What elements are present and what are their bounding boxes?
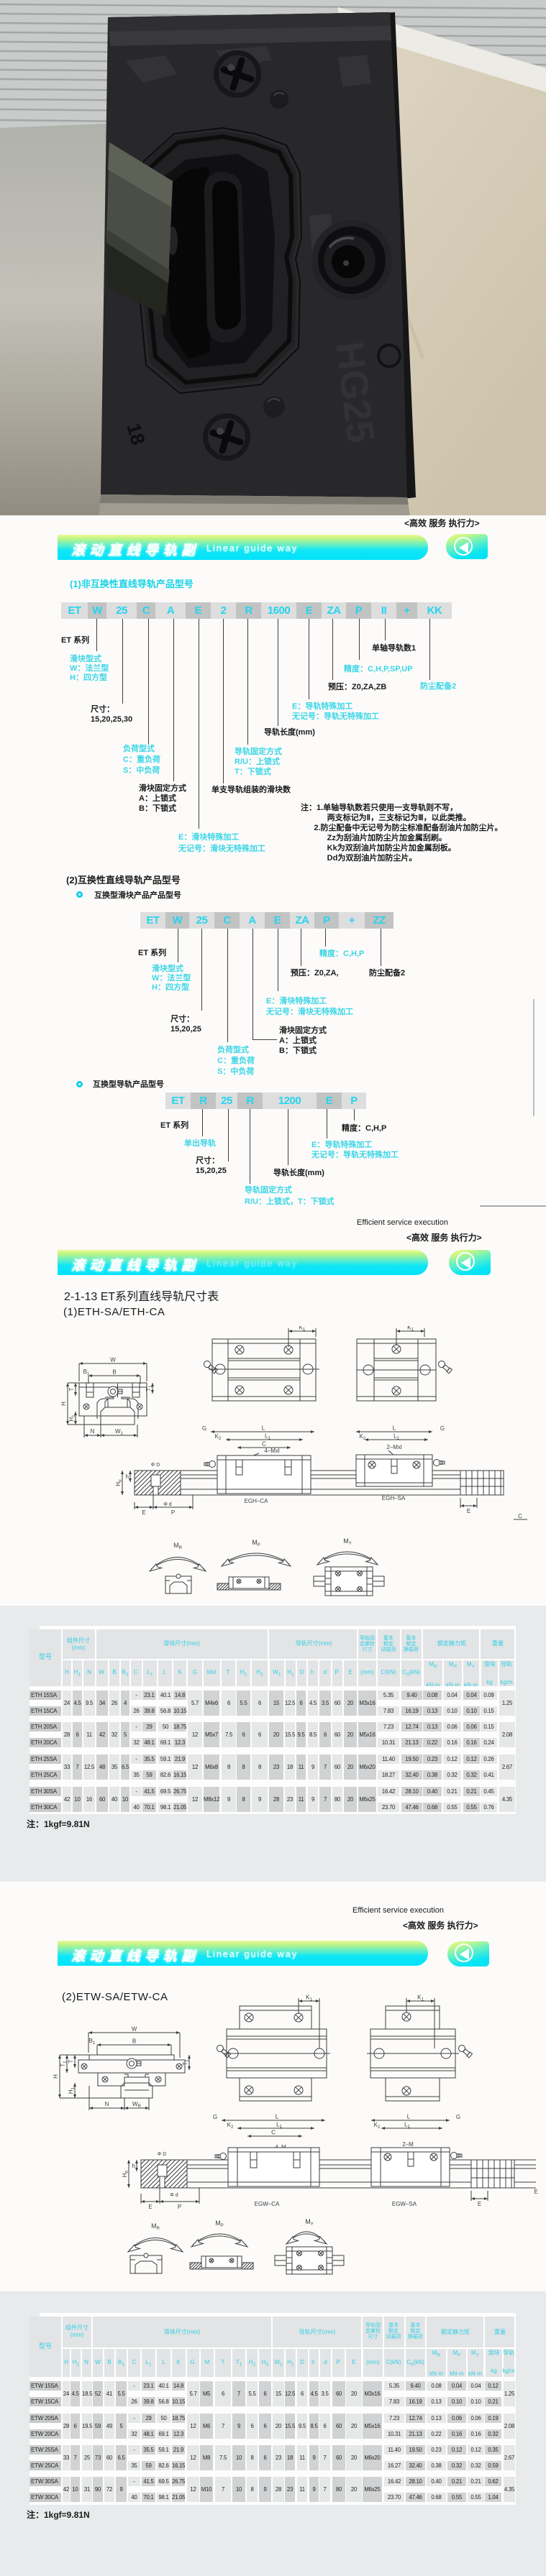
svg-text:N: N xyxy=(91,1428,95,1435)
svg-text:h: h xyxy=(132,2163,135,2169)
svg-text:P: P xyxy=(178,2204,181,2210)
svg-text:WR: WR xyxy=(132,2101,142,2109)
svg-text:G: G xyxy=(440,1425,445,1432)
svg-text:HR: HR xyxy=(115,1479,123,1486)
svg-text:MR: MR xyxy=(173,1542,183,1550)
svg-text:h: h xyxy=(126,1473,129,1480)
svg-text:W: W xyxy=(132,2026,137,2033)
svg-text:EGH–SA: EGH–SA xyxy=(382,1495,406,1501)
svg-text:L: L xyxy=(276,2114,279,2120)
svg-text:L: L xyxy=(262,1425,265,1432)
svg-text:T1: T1 xyxy=(60,2061,68,2067)
svg-text:L: L xyxy=(393,1425,396,1432)
svg-text:E: E xyxy=(148,2204,152,2210)
svg-text:E: E xyxy=(142,1509,145,1516)
svg-text:P: P xyxy=(171,1509,175,1516)
svg-text:W: W xyxy=(110,1357,116,1363)
svg-text:B: B xyxy=(132,2038,136,2045)
svg-text:W1: W1 xyxy=(115,1428,124,1436)
svg-text:MP: MP xyxy=(252,1539,260,1547)
svg-text:E: E xyxy=(467,1508,470,1514)
svg-text:B1: B1 xyxy=(89,2038,96,2046)
svg-text:H1: H1 xyxy=(68,2087,76,2094)
svg-text:4–Mxl: 4–Mxl xyxy=(264,1448,280,1454)
svg-text:C: C xyxy=(518,1513,522,1519)
svg-text:G: G xyxy=(456,2114,460,2120)
svg-text:Φ d: Φ d xyxy=(163,1502,172,1507)
svg-text:EGW–SA: EGW–SA xyxy=(392,2201,417,2207)
svg-text:G: G xyxy=(202,1425,206,1432)
svg-text:K2: K2 xyxy=(215,1433,222,1441)
svg-text:HR: HR xyxy=(122,2170,129,2177)
svg-text:MY: MY xyxy=(343,1537,352,1546)
svg-text:MP: MP xyxy=(215,2219,224,2228)
svg-text:C: C xyxy=(271,2130,276,2136)
svg-text:B: B xyxy=(112,1369,116,1376)
svg-text:H1: H1 xyxy=(68,1414,76,1422)
svg-text:MY: MY xyxy=(305,2218,314,2227)
svg-text:MR: MR xyxy=(151,2222,160,2231)
svg-text:EGH–CA: EGH–CA xyxy=(245,1498,269,1504)
svg-text:K2: K2 xyxy=(227,2122,234,2130)
svg-text:Φ d: Φ d xyxy=(170,2193,178,2198)
svg-text:K2: K2 xyxy=(374,2122,381,2130)
svg-text:N: N xyxy=(105,2101,109,2107)
svg-text:2–Mxl: 2–Mxl xyxy=(386,1444,402,1450)
svg-text:B1: B1 xyxy=(83,1368,90,1376)
svg-text:E: E xyxy=(478,2201,481,2207)
svg-text:L: L xyxy=(407,2114,411,2120)
svg-text:Φ D: Φ D xyxy=(158,2152,167,2157)
svg-text:C: C xyxy=(262,1441,266,1448)
svg-text:H: H xyxy=(60,1402,67,1406)
svg-text:H: H xyxy=(53,2074,59,2079)
svg-text:E: E xyxy=(534,2189,537,2195)
svg-text:T: T xyxy=(68,1387,75,1391)
svg-text:T: T xyxy=(68,2059,74,2063)
svg-text:EGW–CA: EGW–CA xyxy=(255,2201,280,2207)
svg-text:Φ D: Φ D xyxy=(151,1463,160,1468)
svg-text:2–M: 2–M xyxy=(402,2141,414,2148)
svg-text:G: G xyxy=(213,2114,217,2120)
